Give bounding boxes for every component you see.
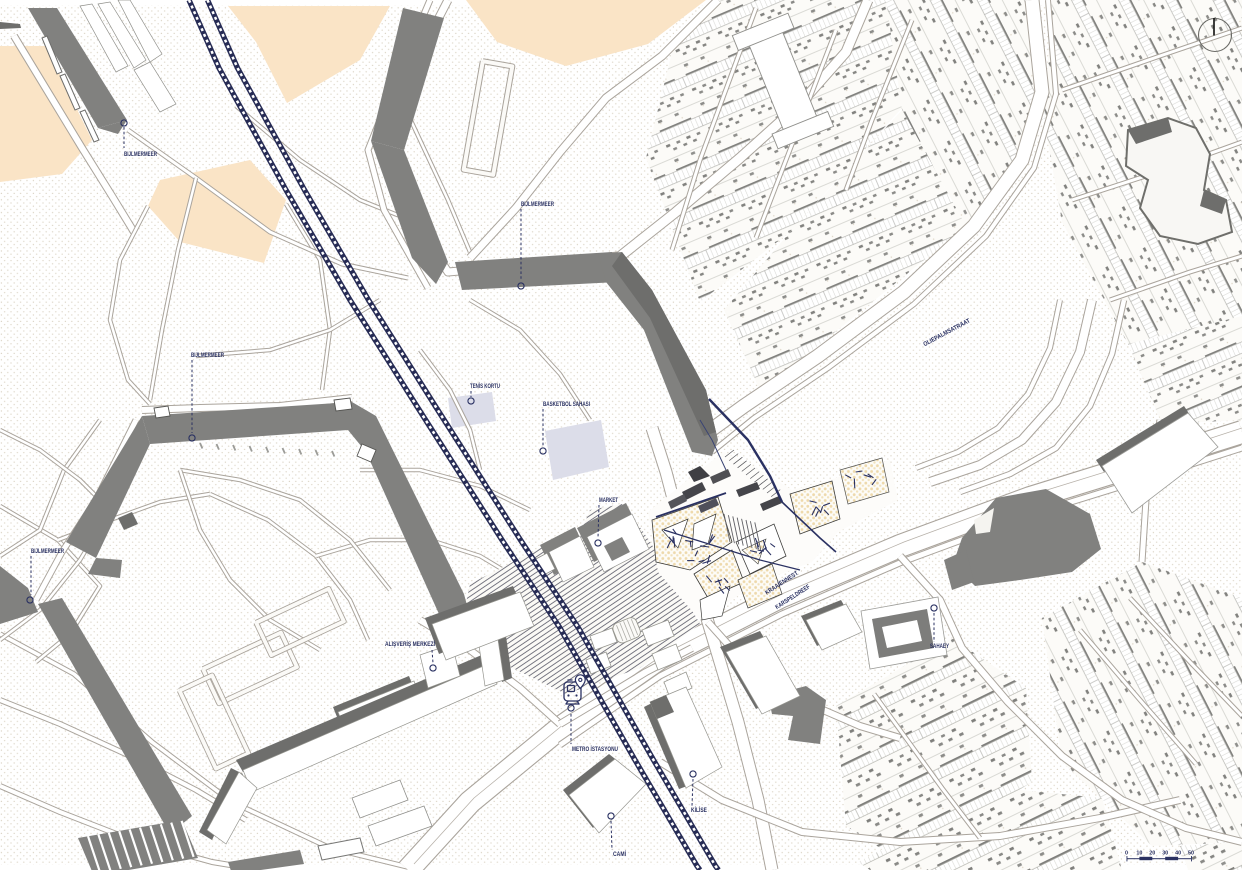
svg-text:SAHAEY: SAHAEY xyxy=(930,643,950,650)
svg-text:40: 40 xyxy=(1175,851,1181,857)
svg-text:BIJLMERMEER: BIJLMERMEER xyxy=(521,201,554,208)
svg-text:KİLİSE: KİLİSE xyxy=(691,806,707,814)
svg-text:MARKET: MARKET xyxy=(599,497,618,504)
svg-text:20: 20 xyxy=(1149,851,1155,857)
svg-text:CAMİ: CAMİ xyxy=(613,850,626,858)
svg-text:BIJLMERMEER: BIJLMERMEER xyxy=(124,151,157,158)
svg-text:TENİS KORTU: TENİS KORTU xyxy=(470,382,500,390)
svg-text:BASKETBOL SAHASI: BASKETBOL SAHASI xyxy=(543,401,590,408)
svg-text:50: 50 xyxy=(1188,851,1194,857)
svg-text:BIJLMERMEER: BIJLMERMEER xyxy=(31,548,64,555)
svg-text:10: 10 xyxy=(1136,851,1142,857)
svg-text:METRO İSTASYONU: METRO İSTASYONU xyxy=(572,745,618,753)
svg-text:0: 0 xyxy=(1125,851,1128,857)
svg-text:BIJLMERMEER: BIJLMERMEER xyxy=(191,352,224,359)
svg-text:ALIŞVERİŞ MERKEZİ: ALIŞVERİŞ MERKEZİ xyxy=(385,640,435,648)
svg-text:30: 30 xyxy=(1162,851,1168,857)
